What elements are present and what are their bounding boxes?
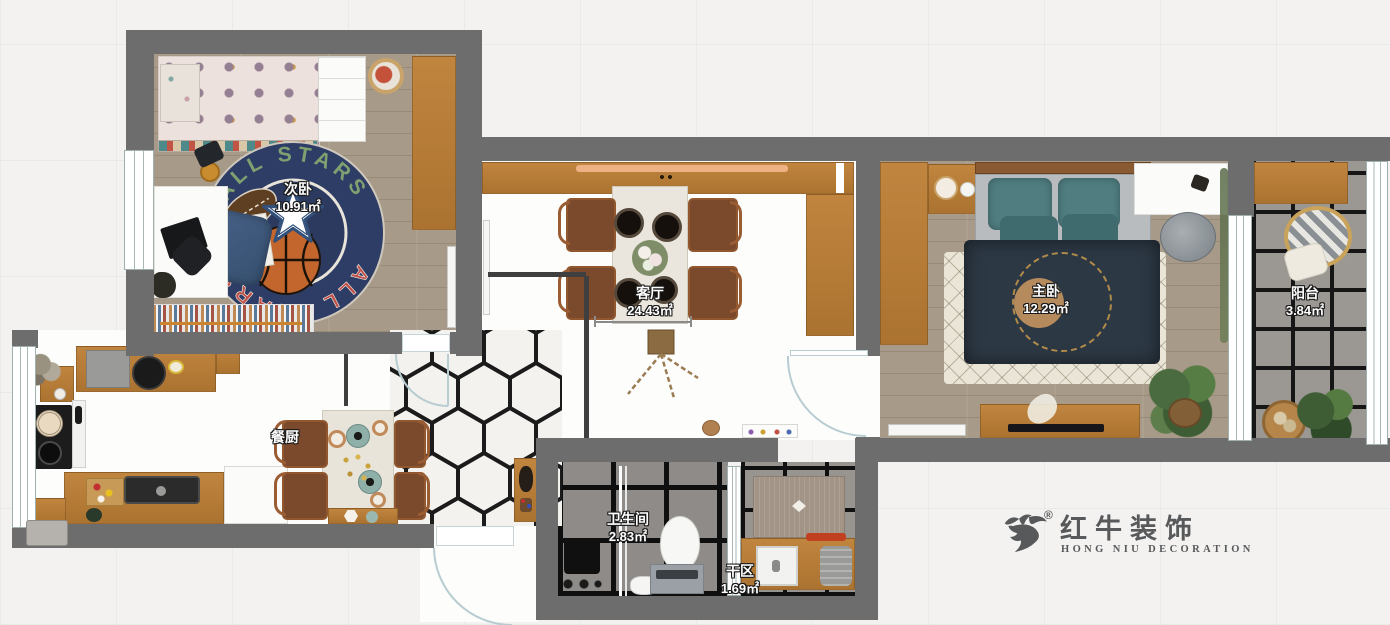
- flower-centerpiece: [632, 240, 668, 276]
- room-name: 次卧: [248, 180, 348, 198]
- brand-name: 红牛装饰: [1060, 514, 1200, 544]
- headboard: [975, 162, 1151, 174]
- room-area: 12.29㎡: [996, 300, 1096, 317]
- secondary-bedroom-door-arc: [394, 332, 452, 410]
- tv: [1008, 424, 1104, 432]
- red-towel: [806, 533, 846, 541]
- vine-plant: [1220, 168, 1228, 343]
- chair-armrest: [730, 269, 742, 313]
- chair-armrest: [274, 472, 286, 516]
- white-wardrobe: [318, 56, 366, 142]
- wall: [1250, 137, 1390, 161]
- place-setting: [652, 212, 682, 242]
- food-board: [86, 478, 124, 506]
- washer-door: [656, 570, 698, 579]
- tall-cabinet: [806, 194, 854, 336]
- wall: [856, 161, 880, 356]
- wall: [458, 137, 1252, 161]
- room-name: 干区: [695, 562, 785, 580]
- cutting-board-gray: [86, 350, 130, 388]
- vase: [54, 388, 66, 400]
- chair-armrest: [730, 201, 742, 245]
- master-radiator: [888, 424, 966, 436]
- wall: [36, 524, 434, 548]
- wall: [128, 332, 402, 354]
- pillow: [160, 64, 200, 122]
- stove-burner-plate: [36, 410, 63, 437]
- room-area: 24.43㎡: [600, 302, 700, 319]
- bookshelf: [152, 304, 314, 334]
- dining-chair: [566, 198, 616, 252]
- room-area: 2.83㎡: [578, 528, 678, 545]
- kettle-handle: [75, 406, 82, 424]
- faucet: [156, 486, 166, 496]
- master-desk: [1134, 163, 1228, 215]
- living-radiator: [483, 220, 490, 315]
- shoes: [519, 466, 533, 492]
- room-name: 客厅: [600, 284, 700, 302]
- registered-mark: ®: [1044, 508, 1053, 522]
- room-name: 餐厨: [245, 428, 325, 446]
- cabinet-slot: [836, 163, 844, 193]
- wall: [456, 30, 482, 356]
- ball-lamp: [960, 182, 975, 197]
- breakfast-tray: [934, 176, 958, 200]
- copper-plate: [328, 430, 346, 448]
- living-room-label: 客厅 24.43㎡: [600, 284, 700, 319]
- brand-logo: ® 红牛装饰 HONG NIU DECORATION: [1000, 500, 1250, 564]
- wall: [1366, 444, 1388, 462]
- room-name: 卫生间: [578, 510, 678, 528]
- master-wardrobe: [880, 162, 928, 345]
- entry-door-arc: [432, 546, 516, 625]
- brand-subtitle: HONG NIU DECORATION: [1061, 544, 1254, 555]
- desk-chair-gray: [1160, 212, 1216, 262]
- copper-plate: [370, 492, 386, 508]
- place-setting: [614, 208, 644, 238]
- shower-fittings: [560, 576, 604, 592]
- teal-plate: [346, 424, 370, 448]
- kitchen-chair: [282, 472, 328, 520]
- floor-plant-dark: [152, 272, 176, 298]
- chair-armrest: [558, 201, 570, 245]
- room-name: 阳台: [1255, 284, 1355, 302]
- utility-box: [26, 520, 68, 546]
- wall: [536, 438, 778, 462]
- chair-armrest: [418, 472, 430, 516]
- dish: [168, 360, 184, 374]
- wall: [878, 438, 1252, 462]
- towels: [820, 546, 852, 586]
- wall: [855, 438, 878, 620]
- room-name: 主卧: [996, 282, 1096, 300]
- balcony-label: 阳台 3.84㎡: [1255, 284, 1355, 319]
- copper-plate: [372, 420, 388, 436]
- entry-door: [436, 526, 514, 546]
- wall: [128, 30, 482, 54]
- chair-armrest: [418, 420, 430, 464]
- gold-flowers: [338, 452, 376, 486]
- tv-stand: [980, 404, 1140, 438]
- cabinet-accent: [576, 165, 788, 172]
- cabinet-knobs: [658, 174, 674, 180]
- wall: [536, 596, 878, 620]
- measure-line: [596, 321, 692, 323]
- kitchen-dining-label: 餐厨: [245, 428, 325, 446]
- measure-tick: [594, 316, 596, 327]
- dark-bowl: [86, 508, 102, 522]
- master-door-arc: [786, 354, 870, 438]
- bread-basket: [702, 420, 720, 436]
- teal-dish: [366, 511, 378, 523]
- master-bedroom-label: 主卧 12.29㎡: [996, 282, 1096, 317]
- window: [1228, 215, 1252, 441]
- secondary-bedroom-label: 次卧 10.91㎡: [248, 180, 348, 215]
- laundry-basket: [368, 58, 404, 94]
- balcony-cabinet: [1254, 162, 1348, 204]
- kitchen-partition: [344, 352, 348, 406]
- stove-burner-wok: [38, 441, 62, 465]
- floor-plan: ALL STARS ALL STARS: [0, 0, 1390, 625]
- wood-wardrobe: [412, 56, 456, 230]
- room-area: 3.84㎡: [1255, 302, 1355, 319]
- entry-screen-horizontal: [488, 272, 586, 277]
- wall: [126, 30, 154, 152]
- window: [12, 346, 36, 528]
- plant-basket: [1168, 398, 1202, 428]
- radiator: [447, 246, 456, 328]
- room-area: 10.91㎡: [248, 198, 348, 215]
- dry-area-label: 干区 1.69㎡: [695, 562, 785, 597]
- bathroom-label: 卫生间 2.83㎡: [578, 510, 678, 545]
- bookshelf-rail: [160, 322, 302, 325]
- shoes-dots: [520, 498, 532, 512]
- cooking-pot: [132, 356, 166, 390]
- entry-screen-vertical: [584, 276, 589, 440]
- room-area: 1.69㎡: [695, 580, 785, 597]
- window: [1366, 161, 1388, 445]
- bench: [328, 508, 398, 524]
- floor-lamp: [616, 328, 708, 402]
- window: [124, 150, 154, 270]
